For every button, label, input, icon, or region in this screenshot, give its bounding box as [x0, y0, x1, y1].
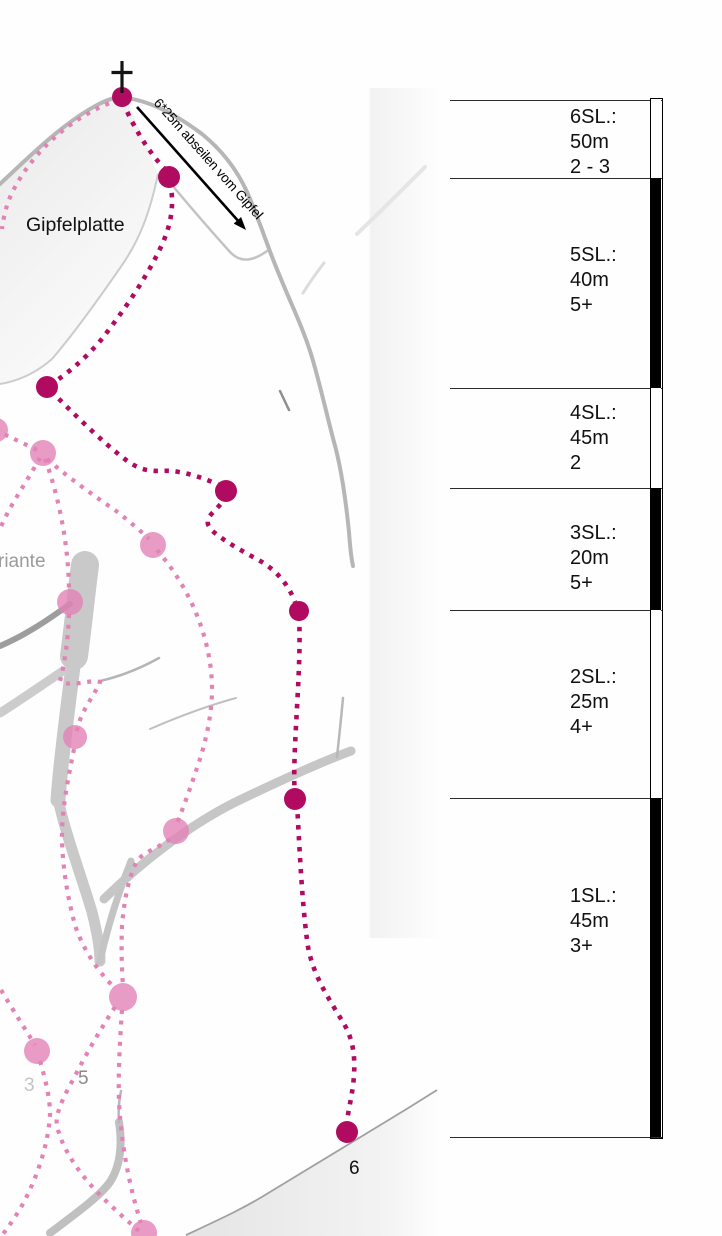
belay-point	[36, 376, 58, 398]
variant-route-segment	[157, 550, 212, 823]
pitch-label: 4SL.:	[570, 401, 617, 426]
variant-route-segment	[62, 749, 114, 987]
belay-point	[284, 788, 306, 810]
variant-belay-point	[140, 532, 166, 558]
pitch-row: 3SL.: 20m 5+	[450, 488, 662, 610]
abseil-label: 6*25m abseilen vom Gipfel	[151, 95, 266, 222]
rock-crack	[100, 658, 159, 681]
variant-route-segment	[45, 459, 69, 592]
main-route-segment	[297, 803, 354, 1123]
pitch-label: 2SL.:	[570, 665, 617, 690]
pitch-info: 3SL.: 20m 5+	[570, 521, 617, 596]
belay-point	[158, 166, 180, 188]
pitch-grade: 5+	[570, 293, 617, 318]
route3-label: 3	[24, 1075, 35, 1096]
pitch-bar-segment	[651, 488, 661, 610]
gipfelplatte-slab	[0, 97, 158, 384]
pitch-label: 3SL.:	[570, 521, 617, 546]
variant-belay-point	[63, 725, 87, 749]
variant-route-segment	[47, 459, 149, 539]
summit-cross-icon	[112, 61, 133, 93]
pitch-row: 4SL.: 45m 2	[450, 388, 662, 488]
ledge-band	[104, 751, 351, 899]
variant-route-segment	[119, 1010, 141, 1223]
pitch-length: 20m	[570, 546, 617, 571]
variant-belay-point	[109, 983, 137, 1011]
variant-route-segment	[0, 458, 40, 529]
pitch-info: 1SL.: 45m 3+	[570, 884, 617, 959]
table-bottom-line	[450, 1137, 662, 1138]
belay-point	[215, 480, 237, 502]
variant-belay-point	[131, 1220, 157, 1236]
main-route-segment	[208, 495, 295, 602]
pitch-label: 6SL.:	[570, 105, 617, 130]
pitch-length: 45m	[570, 426, 617, 451]
ground-slope	[186, 1090, 437, 1236]
pitch-grade: 5+	[570, 571, 617, 596]
pitch-bar-segment	[651, 798, 661, 1137]
pitch-info: 4SL.: 45m 2	[570, 401, 617, 476]
pitch-row: 1SL.: 45m 3+	[450, 798, 662, 1137]
pitch-info: 2SL.: 25m 4+	[570, 665, 617, 740]
main-route-segment	[294, 616, 299, 794]
variant-belay-point	[24, 1038, 50, 1064]
pitch-grade: 4+	[570, 715, 617, 740]
pitch-length: 50m	[570, 130, 617, 155]
route6-label: 6	[349, 1158, 360, 1179]
variant-belay-point	[30, 440, 56, 466]
rock-crack	[150, 698, 236, 729]
rock-line	[303, 263, 324, 293]
pitch-info: 5SL.: 40m 5+	[570, 243, 617, 318]
pitch-grade: 2	[570, 451, 617, 476]
pitch-row: 6SL.: 50m 2 - 3	[450, 100, 662, 178]
rock-face-fade	[368, 88, 446, 938]
gipfelplatte-label: Gipfelplatte	[26, 214, 125, 236]
pitch-label: 5SL.:	[570, 243, 617, 268]
main-route-segment	[51, 391, 223, 487]
pitch-grade: 3+	[570, 934, 617, 959]
rock-crack	[0, 671, 63, 713]
belay-point	[336, 1121, 358, 1143]
pitch-bar-segment	[651, 610, 661, 798]
climbing-topo-page: Gipfelplatte 6*25m abseilen vom Gipfel r…	[0, 0, 722, 1236]
rock-line	[337, 698, 343, 757]
variant-belay-points	[0, 418, 189, 1236]
variant-belay-point	[57, 589, 83, 615]
pitch-row: 2SL.: 25m 4+	[450, 610, 662, 798]
pitch-length: 40m	[570, 268, 617, 293]
pitch-info: 6SL.: 50m 2 - 3	[570, 105, 617, 180]
pitch-bar-segment	[651, 178, 661, 388]
variant-route-segment	[1, 990, 35, 1045]
pitch-label: 1SL.:	[570, 884, 617, 909]
pitch-length: 45m	[570, 909, 617, 934]
belay-point	[289, 601, 309, 621]
pitch-bar-segment	[651, 388, 661, 488]
variante-label: riante	[0, 551, 46, 572]
pitch-length: 25m	[570, 690, 617, 715]
pitch-grade: 2 - 3	[570, 155, 617, 180]
variant-belay-point	[163, 818, 189, 844]
pitch-row: 5SL.: 40m 5+	[450, 178, 662, 388]
route5-label: 5	[78, 1068, 89, 1089]
pitch-bar-segment	[651, 100, 661, 178]
variant-belay-point	[0, 418, 8, 442]
rock-line	[280, 391, 289, 410]
rock-crack	[0, 604, 70, 646]
